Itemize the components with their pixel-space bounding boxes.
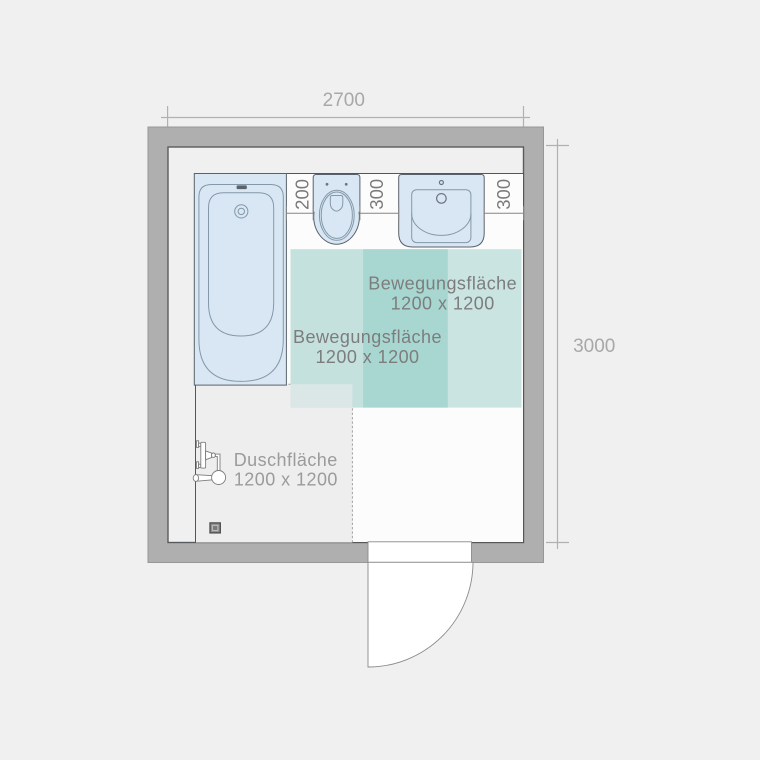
svg-text:Duschfläche: Duschfläche — [234, 450, 338, 470]
svg-text:1200 x 1200: 1200 x 1200 — [234, 470, 338, 490]
svg-text:2700: 2700 — [323, 90, 365, 111]
svg-text:1200 x 1200: 1200 x 1200 — [315, 347, 419, 367]
svg-text:300: 300 — [366, 179, 387, 210]
svg-text:Bewegungsfläche: Bewegungsfläche — [368, 274, 517, 294]
svg-text:3000: 3000 — [573, 336, 615, 357]
svg-text:300: 300 — [493, 179, 514, 210]
svg-text:200: 200 — [292, 179, 313, 210]
svg-text:Bewegungsfläche: Bewegungsfläche — [293, 327, 442, 347]
svg-text:1200 x 1200: 1200 x 1200 — [391, 293, 495, 313]
